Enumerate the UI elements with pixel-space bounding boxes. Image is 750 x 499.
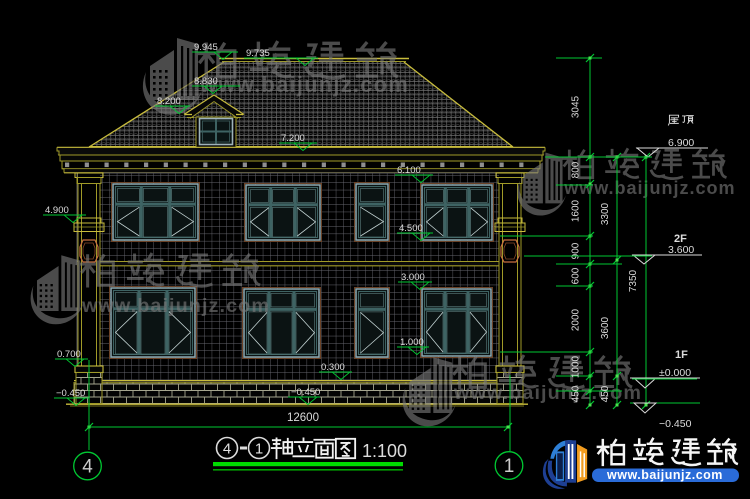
svg-text:±0.000: ±0.000 xyxy=(659,367,691,379)
svg-text:−0.450: −0.450 xyxy=(659,418,692,430)
svg-text:6.900: 6.900 xyxy=(668,137,694,149)
svg-text:3300: 3300 xyxy=(600,202,611,225)
svg-text:www.baijunjz.com: www.baijunjz.com xyxy=(606,468,723,482)
svg-text:0.700: 0.700 xyxy=(57,349,81,360)
svg-text:450: 450 xyxy=(571,385,582,402)
svg-text:3600: 3600 xyxy=(600,316,611,339)
svg-text:1:100: 1:100 xyxy=(362,441,407,461)
svg-text:3.600: 3.600 xyxy=(668,244,694,256)
svg-text:8.830: 8.830 xyxy=(194,76,218,87)
svg-text:1: 1 xyxy=(255,441,263,458)
svg-text:0.300: 0.300 xyxy=(321,362,345,373)
svg-text:1600: 1600 xyxy=(571,199,582,222)
svg-text:1000: 1000 xyxy=(571,355,582,378)
svg-text:2000: 2000 xyxy=(571,308,582,331)
svg-text:7.200: 7.200 xyxy=(281,133,305,144)
svg-text:900: 900 xyxy=(571,242,582,259)
svg-text:−0.450: −0.450 xyxy=(291,387,320,398)
svg-text:1F: 1F xyxy=(675,349,688,361)
svg-text:4.900: 4.900 xyxy=(45,205,69,216)
svg-text:1: 1 xyxy=(504,456,515,477)
svg-text:www.baijunjz.com: www.baijunjz.com xyxy=(453,382,642,404)
svg-text:9.735: 9.735 xyxy=(246,48,270,59)
svg-text:8.200: 8.200 xyxy=(157,96,181,107)
svg-text:www.baijunjz.com: www.baijunjz.com xyxy=(199,72,409,97)
svg-text:1.000: 1.000 xyxy=(400,337,424,348)
svg-text:−0.450: −0.450 xyxy=(56,388,85,399)
svg-text:4: 4 xyxy=(223,441,231,458)
svg-text:800: 800 xyxy=(571,161,582,178)
svg-text:6.100: 6.100 xyxy=(397,165,421,176)
svg-text:12600: 12600 xyxy=(287,412,319,424)
svg-text:600: 600 xyxy=(571,267,582,284)
svg-text:9.945: 9.945 xyxy=(194,42,218,53)
svg-text:www.baijunjz.com: www.baijunjz.com xyxy=(563,178,735,198)
svg-text:4: 4 xyxy=(82,457,93,478)
svg-text:www.baijunjz.com: www.baijunjz.com xyxy=(81,295,270,317)
svg-text:3.000: 3.000 xyxy=(401,272,425,283)
svg-text:4.500: 4.500 xyxy=(399,223,423,234)
svg-text:450: 450 xyxy=(600,385,611,402)
svg-text:3045: 3045 xyxy=(571,95,582,118)
svg-text:7350: 7350 xyxy=(628,269,639,292)
